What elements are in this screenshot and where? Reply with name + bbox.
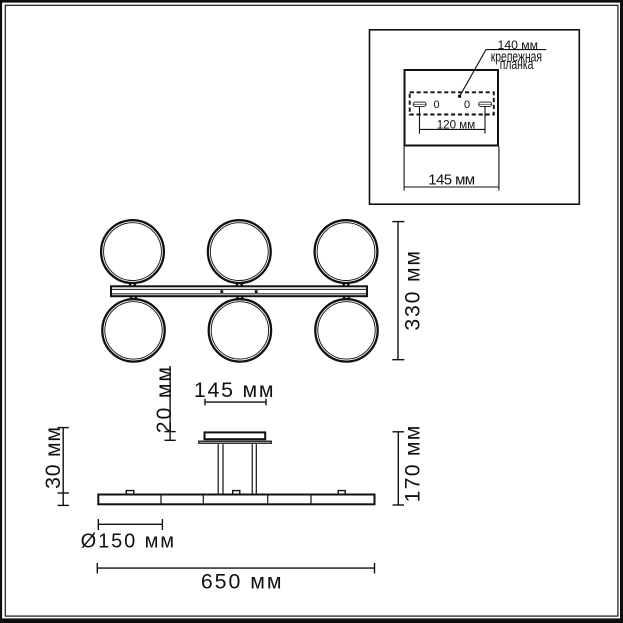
svg-text:145 мм: 145 мм [194,378,276,402]
svg-text:145 мм: 145 мм [428,172,475,189]
svg-text:330 мм: 330 мм [401,249,425,331]
svg-text:20 мм: 20 мм [152,365,176,433]
svg-text:0: 0 [464,99,470,111]
svg-text:170 мм: 170 мм [401,424,425,502]
svg-text:30 мм: 30 мм [41,426,65,489]
svg-text:0: 0 [434,99,440,111]
svg-text:120 мм: 120 мм [437,118,476,131]
svg-text:планка: планка [500,55,534,72]
svg-text:Ø150 мм: Ø150 мм [81,530,176,552]
svg-text:650 мм: 650 мм [201,569,284,593]
